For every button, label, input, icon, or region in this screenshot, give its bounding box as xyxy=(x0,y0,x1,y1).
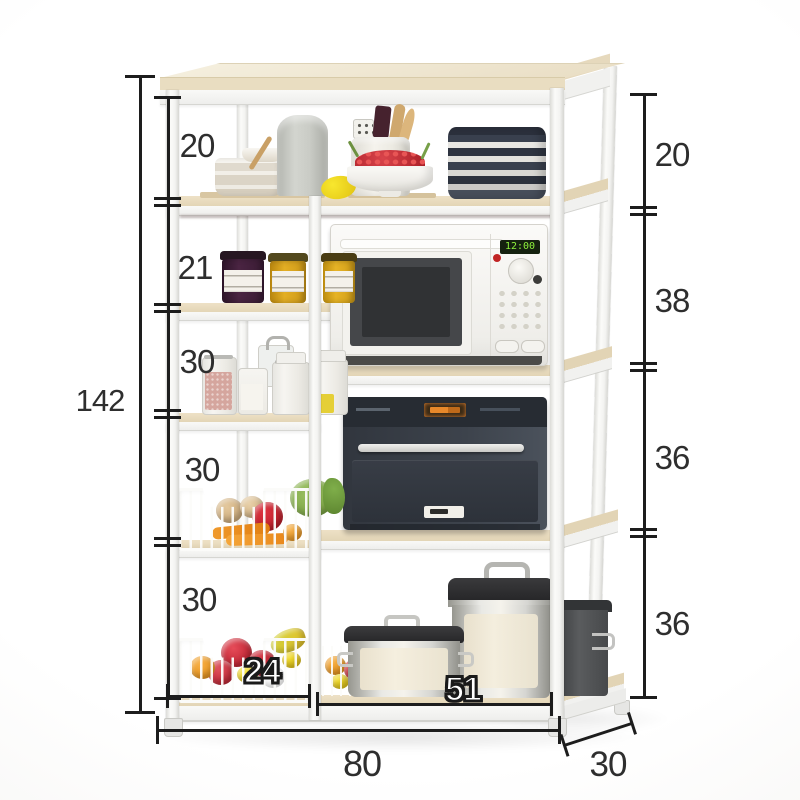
microwave-window-inner xyxy=(362,267,450,337)
dim-label-total-height: 142 xyxy=(76,383,125,419)
dim-tick xyxy=(125,75,155,78)
dim-line-right xyxy=(643,94,646,699)
dark-pot xyxy=(560,610,608,696)
dim-label-depth: 30 xyxy=(590,745,627,785)
tea-jar-lid xyxy=(276,352,306,364)
casserole-handle-right xyxy=(458,652,474,667)
top-surface xyxy=(160,63,625,78)
product-dimension-photo: 12:00 xyxy=(0,0,800,800)
top-front-edge xyxy=(160,77,565,91)
side-shelf-oven xyxy=(560,509,618,549)
dim-line-80 xyxy=(157,729,561,732)
right-front-post xyxy=(550,88,564,720)
dice-cube xyxy=(353,119,374,139)
greens xyxy=(323,478,345,514)
dim-line-left xyxy=(167,97,170,700)
dim-label-left-2: 30 xyxy=(180,343,215,381)
oven-handle xyxy=(358,444,524,452)
stockpot-lid xyxy=(448,578,554,602)
cherry-bowl xyxy=(347,166,433,192)
shelf-microwave-wood xyxy=(321,365,564,376)
dim-label-right-0: 20 xyxy=(655,136,690,174)
shelf-bottom-rail xyxy=(166,706,564,722)
dim-line-total-height xyxy=(139,76,142,714)
dark-pot-handle xyxy=(592,633,615,650)
gray-canister-jar xyxy=(277,115,328,196)
microwave-top-trim xyxy=(340,239,504,249)
dim-label-24: 24 xyxy=(244,653,280,692)
dim-label-right-1: 38 xyxy=(655,282,690,320)
shelf-oven-wood xyxy=(321,530,564,541)
herb-sprig-2 xyxy=(420,142,430,160)
shelf-microwave-rail xyxy=(321,376,564,385)
top-front-rail xyxy=(160,90,565,105)
shelf-left2-wood xyxy=(166,303,357,312)
oven-icon-specks-2 xyxy=(480,408,520,411)
microwave-pill-button-2 xyxy=(521,340,545,353)
bowl-stack xyxy=(215,158,283,196)
cherry-bowl-foot xyxy=(379,191,401,197)
microwave-dial xyxy=(508,258,534,284)
dim-label-left-3: 30 xyxy=(185,451,220,489)
oven-display-digits xyxy=(430,407,460,413)
center-post xyxy=(309,196,321,720)
microwave-keypad xyxy=(496,288,544,334)
shelf-oven-rail xyxy=(321,541,564,550)
casserole-band xyxy=(360,648,448,690)
dim-label-right-3: 36 xyxy=(655,605,690,643)
jam-jar-2-label xyxy=(272,271,304,292)
dim-label-left-1: 21 xyxy=(178,249,213,287)
microwave-dark-button xyxy=(533,275,542,284)
microwave-display: 12:00 xyxy=(500,240,540,254)
left-foot xyxy=(164,718,183,737)
dim-label-51: 51 xyxy=(445,671,481,710)
microwave-panel-divider xyxy=(490,234,491,358)
shelf-left2-rail xyxy=(166,312,357,321)
oven-logo-mark xyxy=(430,509,448,514)
canister-handle xyxy=(266,336,290,350)
shelf-level1-shadow xyxy=(180,215,560,218)
jam-jar-1-label xyxy=(224,270,262,292)
oven-icon-specks xyxy=(356,408,390,411)
tea-jar xyxy=(272,362,310,415)
dim-label-left-4: 30 xyxy=(182,581,217,619)
dim-line-51 xyxy=(317,703,552,706)
dim-line-24 xyxy=(167,695,310,698)
milk-jar-contents xyxy=(241,384,263,410)
oven-shadow xyxy=(350,524,540,530)
shelf-left3-rail xyxy=(166,422,321,431)
dim-label-80: 80 xyxy=(343,743,381,785)
dim-label-left-0: 20 xyxy=(180,127,215,165)
microwave-base xyxy=(334,356,542,365)
casserole-handle-left xyxy=(337,652,353,667)
dim-tick xyxy=(125,711,155,714)
dim-label-right-2: 36 xyxy=(655,439,690,477)
microwave-pill-button-1 xyxy=(495,340,519,353)
plate-stack xyxy=(448,127,546,199)
jam-jar-3-label xyxy=(325,271,353,292)
microwave-red-button xyxy=(493,254,501,262)
